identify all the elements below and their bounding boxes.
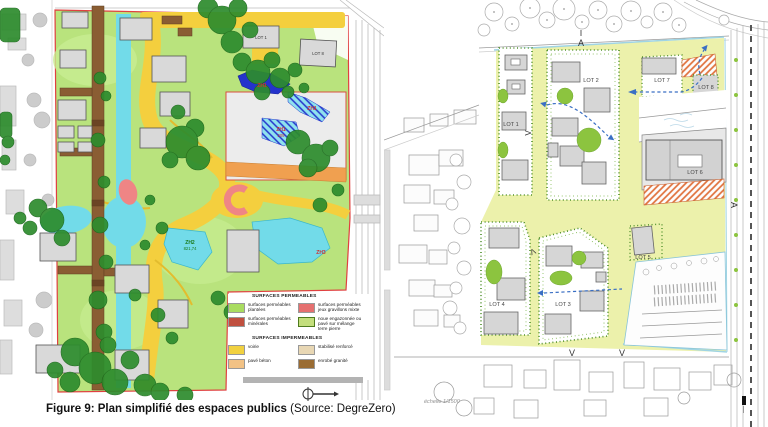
right-lot2-label: LOT 2 bbox=[583, 78, 598, 84]
right-lot6-label: LOT 6 bbox=[687, 170, 702, 176]
marker-a-top: A bbox=[578, 38, 584, 48]
swatch-enrobe bbox=[298, 359, 315, 369]
right-lot8-label: LOT 8 bbox=[698, 85, 713, 91]
zh1-inner-area: 209 bbox=[278, 133, 286, 138]
swatch-stabilise bbox=[298, 345, 315, 355]
right-lot1-label: LOT 1 bbox=[503, 122, 518, 128]
lot-3-area bbox=[539, 228, 608, 344]
marker-v-bottom-a: V bbox=[569, 348, 575, 358]
right-map-lot-plan: A A V V V V LOT 1 LOT 2 LOT 3 LOT 4 LOT … bbox=[384, 0, 768, 427]
figure-caption: Figure 9: Plan simplifié des espaces pub… bbox=[46, 403, 376, 415]
swatch-voirie bbox=[228, 345, 245, 355]
map-legend: SURFACES PERMEABLES surfaces perméables … bbox=[228, 294, 370, 380]
marker-a-side: A bbox=[729, 202, 739, 208]
lot-2-area bbox=[547, 50, 619, 200]
lot-4-area bbox=[481, 222, 530, 335]
legend-permeable-title: SURFACES PERMEABLES bbox=[252, 294, 370, 300]
legend-impermeable-title: SURFACES IMPERMEABLES bbox=[252, 336, 370, 342]
legend-label: surfaces perméables minérales bbox=[248, 316, 294, 327]
right-lot5-label: LOT 5 bbox=[635, 255, 650, 261]
lot-6-area bbox=[642, 128, 726, 205]
zh1-band-label: ZH1 bbox=[307, 106, 317, 112]
swatch-permeable-plante bbox=[228, 303, 245, 313]
marker-v-bottom-b: V bbox=[619, 348, 625, 358]
legend-label: noue engazonnée ou pavé sur mélange terr… bbox=[318, 316, 364, 332]
caption-title: Figure 9: Plan simplifié des espaces pub… bbox=[46, 403, 287, 415]
right-corridor bbox=[731, 22, 764, 427]
swatch-permeable-minerale bbox=[228, 317, 245, 327]
right-lot7-label: LOT 7 bbox=[654, 78, 669, 84]
legend-item: pavé béton bbox=[228, 358, 294, 369]
legend-item: surfaces perméables jeux gravillons mixt… bbox=[298, 302, 364, 313]
zh1-pond-label: ZH1 bbox=[257, 83, 267, 89]
zh2-area: 821,74 bbox=[184, 246, 197, 251]
legend-label: enrobé granité bbox=[318, 358, 364, 363]
right-lot3-label: LOT 3 bbox=[555, 302, 570, 308]
right-lot4-label: LOT 4 bbox=[489, 302, 504, 308]
scale-bar-icon bbox=[742, 396, 746, 405]
figure-two-maps: LOT 1 LOT 8 ZH1 ZH1 ZH1 209 ZH2 821,74 Z… bbox=[0, 0, 768, 427]
left-map-scalebar bbox=[243, 377, 363, 383]
zh3-label: ZH3 bbox=[316, 250, 326, 256]
legend-label: pavé béton bbox=[248, 358, 294, 363]
left-lot8-label: LOT 8 bbox=[312, 51, 324, 56]
legend-item: surfaces perméables minérales bbox=[228, 316, 294, 327]
scale-text: échelle 1/1500 bbox=[424, 399, 460, 405]
legend-item: enrobé granité bbox=[298, 358, 364, 369]
parking-area bbox=[624, 252, 727, 350]
legend-label: surfaces perméables plantées bbox=[248, 302, 294, 313]
legend-label: voirie bbox=[248, 344, 294, 349]
caption-source: (Source: DegreZero) bbox=[287, 403, 396, 415]
swatch-pave-beton bbox=[228, 359, 245, 369]
legend-label: surfaces perméables jeux gravillons mixt… bbox=[318, 302, 364, 313]
left-lot1-label: LOT 1 bbox=[255, 35, 267, 40]
swatch-permeable-jeux bbox=[298, 303, 315, 313]
legend-item: voirie bbox=[228, 344, 294, 355]
legend-item: stabilisé renforcé bbox=[298, 344, 364, 355]
legend-item: surfaces perméables plantées bbox=[228, 302, 294, 313]
marker-v-lot1: V bbox=[524, 130, 533, 136]
legend-label: stabilisé renforcé bbox=[318, 344, 364, 349]
swatch-noue bbox=[298, 317, 315, 327]
legend-item: noue engazonnée ou pavé sur mélange terr… bbox=[298, 316, 364, 332]
